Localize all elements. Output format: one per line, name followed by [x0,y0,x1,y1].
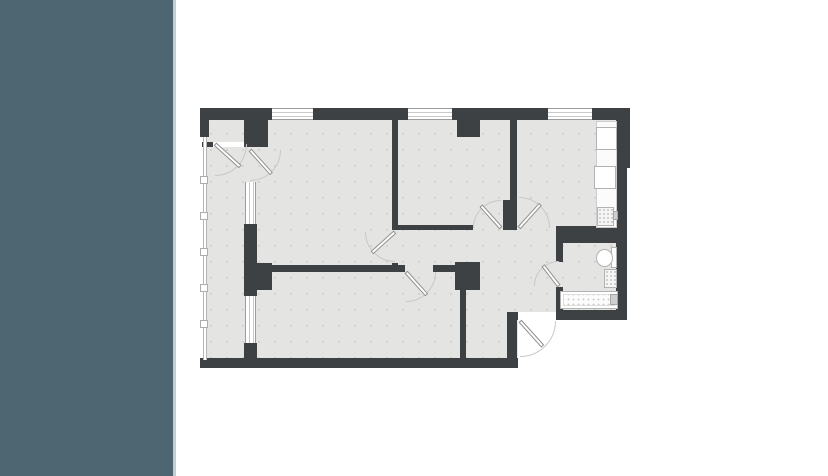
wall-bath-west-upper [556,243,563,262]
wall-balcony-south [244,343,257,360]
window-balcony-lower [245,296,256,343]
wall-bath-north [556,226,618,243]
kitchen-sink [597,207,614,226]
kitchen-appliance-lower [594,166,616,189]
window-living [272,108,313,120]
wall-entry-east [507,312,517,358]
wall-bedroom2-east [460,290,466,360]
wall-bath-south [556,310,627,320]
balcony-railing-post-2 [200,212,208,220]
bathtub-faucet [610,294,618,305]
kitchen-appliance-upper [596,127,617,150]
threshold-entry [518,312,556,320]
floor-plan [0,0,828,476]
balcony-railing-post-1 [200,176,208,184]
wall-bedroom1-column [457,120,480,137]
wall-balcony-junction [244,263,272,290]
wall-corner-block [244,108,268,147]
wall-living-bedroom1 [392,120,398,230]
window-kitchen [548,108,592,120]
kitchen-faucet [613,211,618,220]
wall-bedroom1-south [398,225,473,230]
wall-bedroom2-north-1 [272,265,405,272]
balcony-railing-post-3 [200,248,208,256]
wall-top-2 [313,108,408,120]
wall-left-column [200,108,209,137]
wall-top-3 [452,108,548,120]
side-panel-edge [173,0,176,476]
bathroom-sink [604,269,617,288]
balcony-railing-post-5 [200,320,208,328]
wall-balcony-mid-1 [244,224,257,263]
wall-bedroom1-kitchen [510,120,517,202]
outside-right-step [627,166,633,320]
wall-right-upper [616,108,630,168]
window-bedroom-1 [408,108,452,120]
wall-bedroom2-north-2 [433,265,457,272]
wall-hall-pillar [455,262,480,290]
wall-kitchen-pillar [503,200,517,230]
toilet [596,249,613,267]
side-panel [0,0,173,476]
window-balcony-upper [245,182,256,224]
balcony-railing-post-4 [200,284,208,292]
